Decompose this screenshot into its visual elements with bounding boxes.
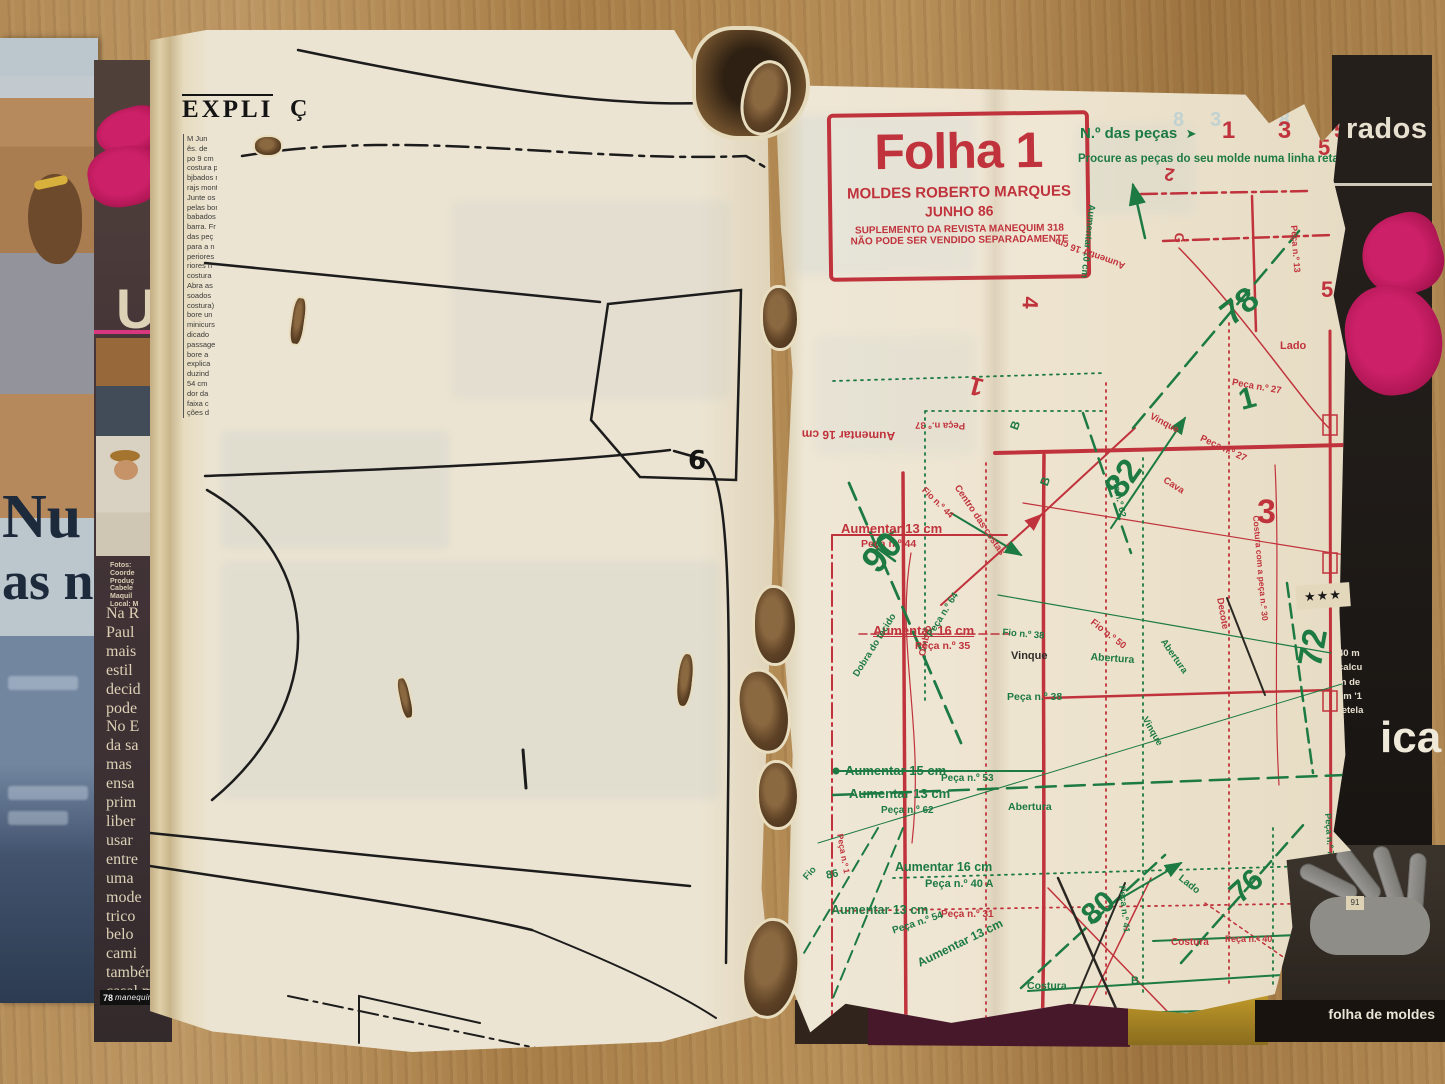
article-word: Paul: [106, 624, 154, 643]
corner-number-chip: 91: [1346, 896, 1364, 910]
instruction-line: das peç: [187, 232, 217, 242]
pattern-label: 76: [1223, 863, 1271, 911]
article-word: usar: [106, 832, 154, 851]
pattern-label: Cava: [1161, 475, 1186, 496]
article-word: entre: [106, 851, 154, 870]
cover-big-word-fragment: ica: [1380, 713, 1441, 763]
instruction-line: soados: [187, 291, 217, 301]
article-word: Na R: [106, 605, 154, 624]
pattern-label: Abertura: [1008, 801, 1052, 813]
pattern-label: Costura: [1027, 980, 1067, 992]
article-word: belo: [106, 926, 154, 945]
pattern-label: Dobra do tecido: [851, 612, 899, 679]
pattern-label: Aumentar 13 cm: [849, 786, 950, 801]
instruction-line: passage: [187, 340, 217, 350]
pattern-label: 5: [1318, 135, 1330, 161]
pattern-label: G: [1172, 232, 1187, 243]
instruction-line: dicado: [187, 330, 217, 340]
article-word: No E: [106, 718, 154, 737]
article-word: liber: [106, 813, 154, 832]
instruction-line: 54 cm: [187, 379, 217, 389]
instruction-line: pelas bor: [187, 203, 217, 213]
magazine-scene: Nu as n Udq Fotos:CoordeProduçCabeleMaqu…: [0, 0, 1445, 1084]
article-word: tambén: [106, 964, 154, 983]
pattern-labels: Aumentar 13 cmPeça n.º 4490Aumentar 16 c…: [775, 85, 1363, 1042]
pattern-label: Fio n.º 38: [1002, 627, 1045, 642]
instruction-line: dor da: [187, 389, 217, 399]
pattern-label: Peça n.º 1: [835, 833, 852, 874]
pattern-label: 86: [825, 867, 839, 881]
instruction-line: periores: [187, 252, 217, 262]
pattern-label: Fio n.º 44: [920, 485, 956, 520]
instruction-line: riores n: [187, 261, 217, 271]
glove-photo: [1282, 845, 1445, 1007]
instruction-line: para a n: [187, 242, 217, 252]
pattern-label: B: [1131, 975, 1139, 987]
pattern-piece-number: 6: [688, 446, 706, 476]
article-word: mode: [106, 889, 154, 908]
pattern-label: 78: [1213, 280, 1267, 334]
pattern-label: Aumentar 13 cm: [831, 903, 928, 917]
pattern-label: 72: [1291, 626, 1336, 670]
pattern-sheet-folha1: 83 85 Folha 1 MOLDES ROBERTO MARQUES JUN…: [775, 85, 1363, 1042]
credit-line: Cabele: [110, 585, 138, 593]
pattern-label: B: [1007, 419, 1023, 432]
masthead-fragment: rados: [1346, 113, 1427, 146]
instruction-text-column: M Junês. depo 9 cmcostura pbjbados rrajs…: [183, 134, 217, 418]
pattern-label: Lado: [1176, 873, 1202, 896]
pattern-label: Peça n.º 27: [1198, 433, 1248, 464]
pattern-label: Aumentar 10 cm: [1078, 204, 1097, 279]
pattern-label: 5: [1321, 277, 1333, 303]
instruction-line: babados: [187, 212, 217, 222]
pattern-label: Peça n.º 13: [1289, 225, 1302, 273]
instruction-line: explica: [187, 359, 217, 369]
cover-rule: [1332, 183, 1432, 186]
lips-graphic-large: [1340, 205, 1432, 465]
pattern-label: Peça n.º 31: [941, 909, 994, 920]
instruction-line: po 9 cm: [187, 154, 217, 164]
pattern-label: Peça n.º 53: [941, 773, 994, 784]
instruction-line: barra. Fr: [187, 222, 217, 232]
pattern-label: Centro das costas: [952, 483, 1007, 557]
manequim-logo: manequim: [115, 993, 155, 1002]
article-word: mas: [106, 756, 154, 775]
article-word: mais: [106, 643, 154, 662]
instruction-line: Junte os: [187, 193, 217, 203]
credit-line: Coorde: [110, 570, 138, 578]
pattern-label: Vinque: [1139, 715, 1164, 748]
pattern-label: Abertura: [1158, 637, 1190, 676]
cover-headline-line1: Nu: [2, 488, 81, 547]
pattern-label: Vinque: [1148, 411, 1181, 436]
pattern-label: Aumentar 16 cm: [895, 860, 992, 874]
pattern-label: Fio n.º 50: [1088, 617, 1128, 652]
pattern-label: Aumentar 15 cm: [845, 763, 946, 778]
article-word: estil: [106, 662, 154, 681]
credit-line: Produç: [110, 578, 138, 586]
pattern-label: Peça n.º 40 A: [925, 878, 993, 890]
article-word: trico: [106, 908, 154, 927]
pattern-label: 2: [1163, 163, 1176, 185]
pattern-label: Fio: [801, 864, 819, 882]
page-number: 78: [103, 993, 113, 1003]
torn-hole: [253, 135, 283, 157]
instruction-line: costura p: [187, 163, 217, 173]
instruction-line: ções d: [187, 408, 217, 418]
photo-credits: Fotos:CoordeProduçCabeleMaquilLocal: M: [110, 562, 138, 609]
instruction-line: M Jun: [187, 134, 217, 144]
snippet-line: 40 m: [1338, 647, 1363, 661]
instruction-line: costura: [187, 271, 217, 281]
pattern-label: Peça n.º 62: [881, 805, 934, 816]
pattern-label: Peça n.º 37: [915, 419, 965, 431]
explanations-header-fragment: Ç: [290, 96, 307, 123]
black-pattern-lines: [150, 30, 774, 1052]
torn-paper: [760, 285, 800, 351]
pattern-label: Peça n.º 41: [1117, 885, 1132, 933]
instruction-line: duzind: [187, 369, 217, 379]
instruction-line: bjbados r: [187, 173, 217, 183]
pattern-label: 80: [1075, 885, 1123, 933]
article-word: prim: [106, 794, 154, 813]
article-word: pode: [106, 700, 154, 719]
pattern-label: Peça n.º 38: [1007, 691, 1062, 703]
pattern-label: Abertura: [1090, 651, 1134, 666]
instruction-line: Abra as: [187, 281, 217, 291]
instruction-line: bore a: [187, 350, 217, 360]
instruction-line: ês. de: [187, 144, 217, 154]
pattern-label: B: [1037, 475, 1053, 488]
pattern-label: Costura: [1171, 937, 1209, 948]
article-word: decid: [106, 681, 154, 700]
folha-de-moldes-band: folha de moldes: [1255, 1000, 1445, 1042]
instruction-line: rajs mont: [187, 183, 217, 193]
credit-line: Fotos:: [110, 562, 138, 570]
pattern-label: Peça n.º 40: [1225, 934, 1272, 944]
instruction-line: faixa c: [187, 399, 217, 409]
article-word: da sa: [106, 737, 154, 756]
pattern-label: Lado: [1280, 340, 1306, 352]
rating-stars: ★★★: [1295, 582, 1351, 610]
article-word: uma: [106, 870, 154, 889]
pattern-label: 4: [1017, 296, 1043, 309]
instruction-line: bore un: [187, 310, 217, 320]
explanations-header: EXPLI: [182, 94, 273, 124]
cover-headline-line2: as n: [2, 556, 94, 607]
torn-paper: [752, 585, 798, 666]
instruction-line: costura): [187, 301, 217, 311]
left-pattern-page: EXPLI Ç M Junês. depo 9 cmcostura pbjbad…: [150, 30, 774, 1052]
article-text-column: Na RPaulmaisestildecidpodeNo Eda samasen…: [106, 605, 154, 1002]
instruction-line: minicurs: [187, 320, 217, 330]
article-word: cami: [106, 945, 154, 964]
pattern-label: Vinque: [1011, 650, 1047, 662]
credit-line: Maquil: [110, 593, 138, 601]
pattern-label: 1: [965, 369, 987, 403]
article-word: ensa: [106, 775, 154, 794]
pattern-label: Aumentar 16 cm: [802, 427, 896, 443]
cover-lower-area: [0, 636, 98, 1003]
pattern-label: Decote: [1214, 597, 1230, 630]
torn-paper: [756, 760, 800, 830]
